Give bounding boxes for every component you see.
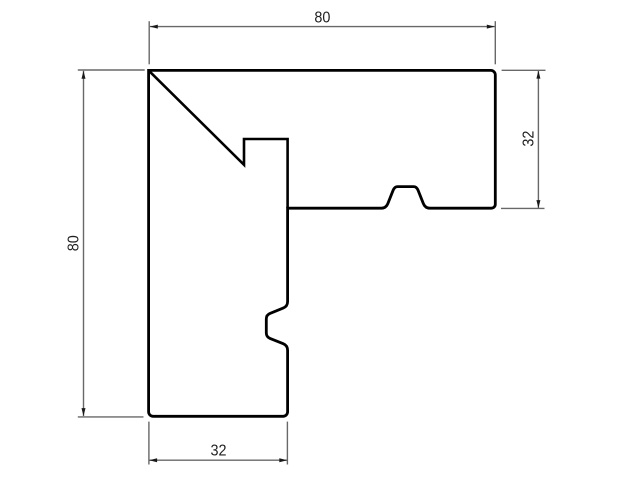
svg-text:32: 32 <box>520 131 538 147</box>
svg-text:80: 80 <box>65 235 83 251</box>
svg-text:80: 80 <box>314 9 330 27</box>
svg-text:32: 32 <box>210 442 226 460</box>
